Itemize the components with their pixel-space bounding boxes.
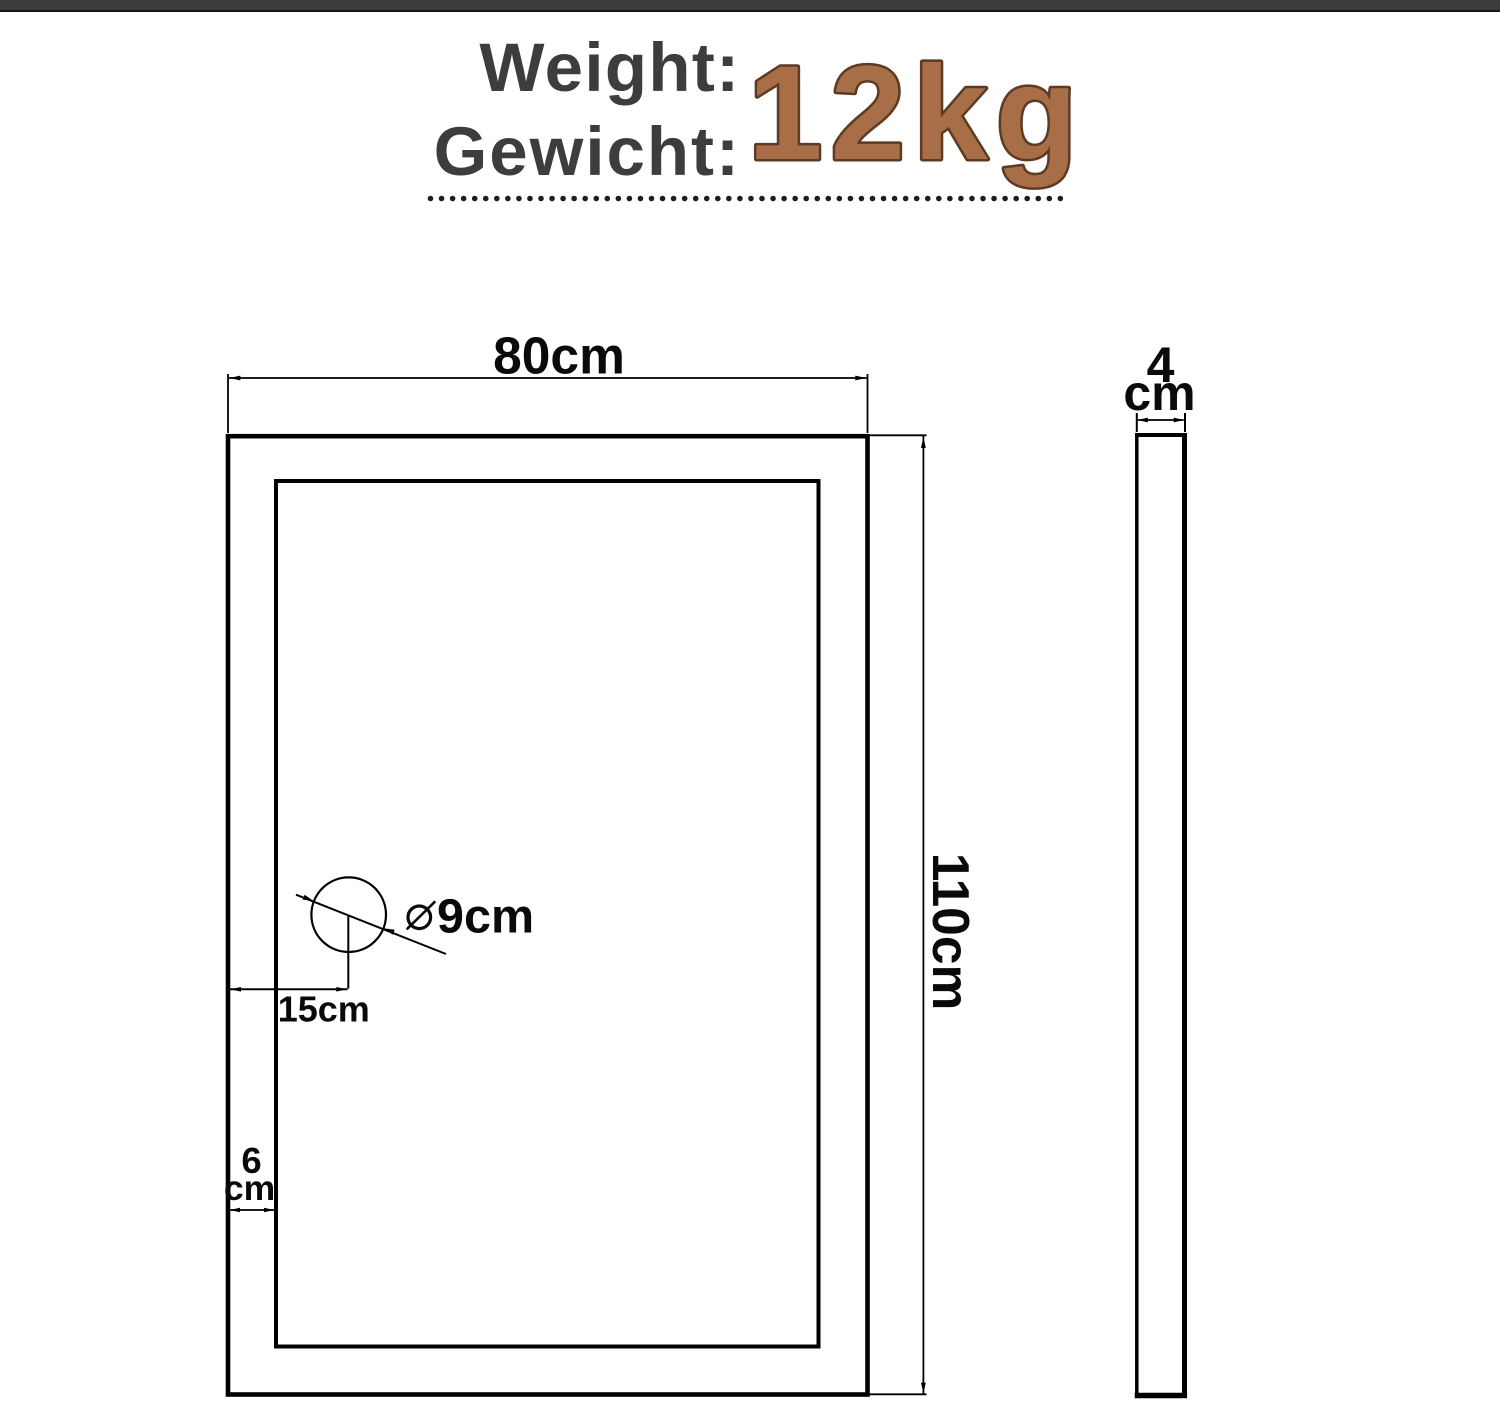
svg-text:Gewicht:: Gewicht: bbox=[434, 113, 741, 190]
svg-text:9cm: 9cm bbox=[437, 890, 534, 944]
svg-text:110cm: 110cm bbox=[922, 853, 980, 1011]
svg-text:cm: cm bbox=[1123, 365, 1195, 421]
svg-text:Weight:: Weight: bbox=[479, 29, 740, 106]
svg-text:12kg: 12kg bbox=[748, 39, 1085, 188]
svg-text:cm: cm bbox=[224, 1168, 275, 1208]
svg-text:15cm: 15cm bbox=[278, 989, 370, 1030]
svg-text:80cm: 80cm bbox=[493, 327, 625, 385]
